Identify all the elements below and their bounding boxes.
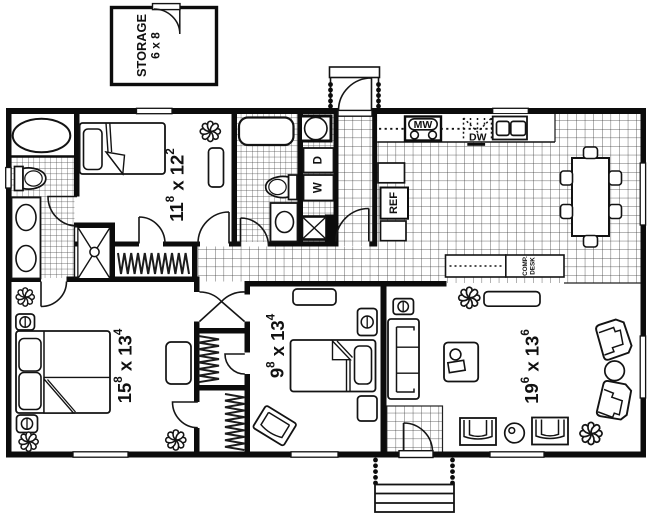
svg-text:W: W (313, 182, 325, 193)
svg-text:118 x 122: 118 x 122 (165, 148, 187, 222)
svg-text:158 x 134: 158 x 134 (113, 328, 135, 403)
svg-text:MW: MW (414, 119, 433, 131)
svg-text:6 x 8: 6 x 8 (149, 32, 163, 59)
svg-text:DESK: DESK (530, 257, 537, 275)
svg-text:98 x 134: 98 x 134 (266, 313, 288, 378)
svg-text:REF: REF (388, 192, 400, 214)
svg-text:D: D (313, 156, 325, 164)
svg-text:STORAGE: STORAGE (134, 14, 149, 78)
svg-text:DW: DW (469, 131, 487, 143)
svg-text:196 x 136: 196 x 136 (520, 329, 542, 404)
svg-text:COMP.: COMP. (522, 256, 529, 276)
